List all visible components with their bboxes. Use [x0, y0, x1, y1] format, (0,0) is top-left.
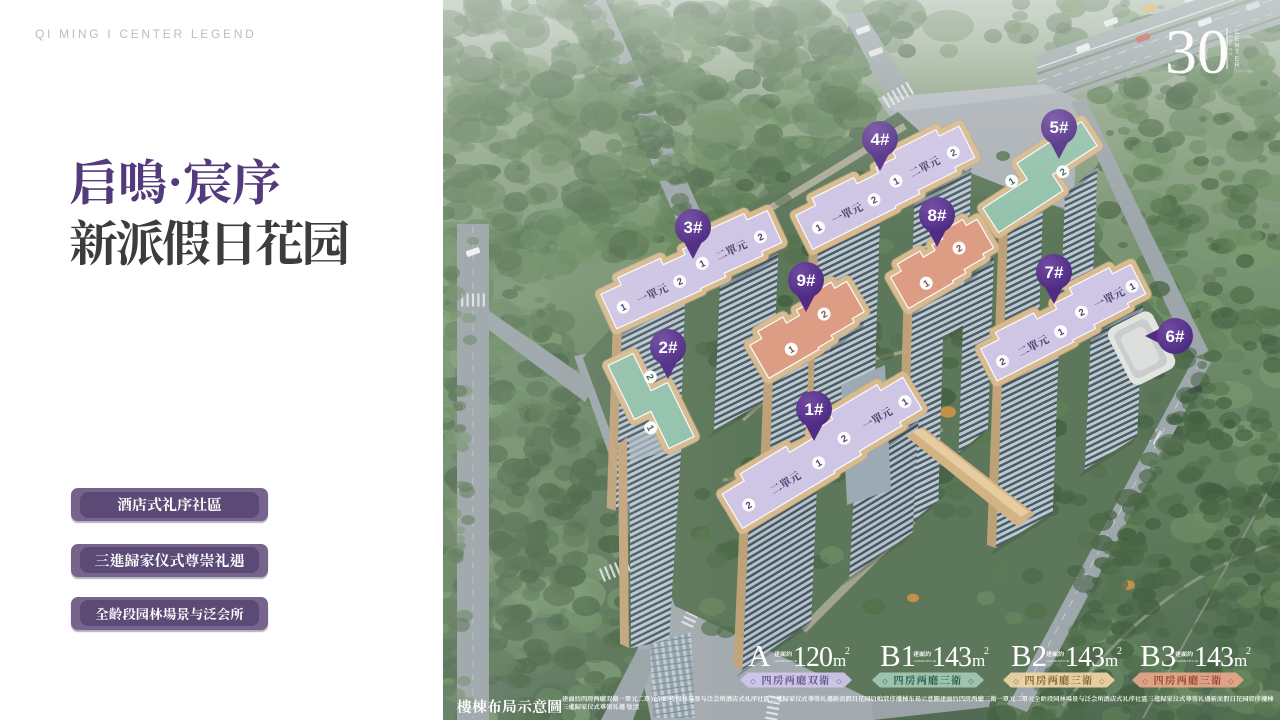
svg-text:143: 143: [1194, 642, 1233, 673]
svg-text:2: 2: [1117, 646, 1122, 657]
svg-text:三進歸家仪式尊崇礼遇 敬請: 三進歸家仪式尊崇礼遇 敬請: [562, 702, 640, 711]
svg-text:30: 30: [1165, 16, 1229, 87]
svg-text:2: 2: [1246, 646, 1251, 657]
svg-text:建面約: 建面約: [1046, 649, 1065, 658]
svg-text:B1: B1: [880, 638, 916, 673]
svg-text:◇: ◇: [1228, 679, 1234, 686]
svg-text:L: L: [1230, 30, 1232, 34]
svg-text:B3: B3: [1140, 638, 1176, 673]
svg-text:A: A: [748, 638, 771, 673]
svg-text:120: 120: [793, 642, 832, 673]
svg-text:建面約: 建面約: [774, 649, 793, 658]
svg-text:四房两廳三衛: 四房两廳三衛: [894, 673, 963, 688]
svg-text:四房两廳三衛: 四房两廳三衛: [1154, 673, 1223, 688]
svg-text:143: 143: [932, 642, 971, 673]
svg-text:建面約四房两廳双衛一單元二單元全齡段园林場景与泛会所酒店式礼: 建面約四房两廳双衛一單元二單元全齡段园林場景与泛会所酒店式礼序社區三進歸家仪式尊…: [561, 694, 1274, 703]
svg-text:◇: ◇: [750, 679, 756, 686]
svg-text:建面約: 建面約: [913, 649, 932, 658]
svg-text:四房两廳双衛: 四房两廳双衛: [762, 673, 831, 688]
svg-text:143: 143: [1065, 642, 1104, 673]
svg-text:◇: ◇: [836, 679, 842, 686]
svg-text:G: G: [1229, 39, 1232, 43]
svg-text:建面約: 建面約: [1175, 649, 1194, 658]
svg-text:D: D: [1229, 52, 1232, 56]
svg-text:◇: ◇: [1142, 679, 1148, 686]
svg-text:R: R: [1235, 62, 1240, 69]
svg-text:2: 2: [984, 646, 989, 657]
svg-text:◇: ◇: [1013, 679, 1019, 686]
svg-text:◇: ◇: [968, 679, 974, 686]
svg-text:四房两廳三衛: 四房两廳三衛: [1025, 673, 1094, 688]
svg-text:N: N: [1229, 48, 1232, 52]
svg-text:B2: B2: [1011, 638, 1047, 673]
svg-text:◇: ◇: [1099, 679, 1105, 686]
svg-text:樓棟布局示意圖: 樓棟布局示意圖: [457, 696, 562, 717]
svg-text:◇: ◇: [882, 679, 888, 686]
svg-text:2: 2: [845, 646, 850, 657]
